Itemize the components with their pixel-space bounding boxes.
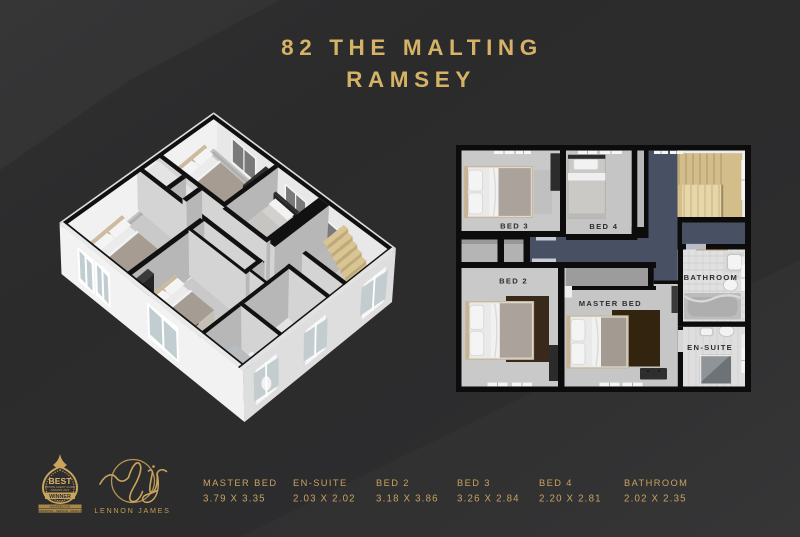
svg-text:3.79 X 3.35: 3.79 X 3.35 bbox=[203, 494, 266, 505]
svg-text:EN-SUITE: EN-SUITE bbox=[293, 478, 348, 488]
svg-text:MARKETING - SERVICE - RESULTS: MARKETING - SERVICE - RESULTS bbox=[37, 509, 84, 513]
svg-text:BED 4: BED 4 bbox=[589, 222, 618, 231]
svg-text:LENNON JAMES: LENNON JAMES bbox=[94, 506, 170, 515]
svg-text:BED 3: BED 3 bbox=[500, 221, 529, 230]
svg-text:BED 2: BED 2 bbox=[499, 276, 528, 285]
svg-text:2.03 X 2.02: 2.03 X 2.02 bbox=[293, 494, 356, 505]
svg-text:BED 2: BED 2 bbox=[376, 478, 410, 488]
svg-text:3.26 X 2.84: 3.26 X 2.84 bbox=[457, 494, 520, 505]
svg-text:2.02 X 2.35: 2.02 X 2.35 bbox=[624, 494, 687, 505]
svg-text:BED 4: BED 4 bbox=[539, 478, 573, 488]
svg-text:AWARDS 2022: AWARDS 2022 bbox=[51, 488, 70, 492]
svg-text:RAMSEY: RAMSEY bbox=[346, 67, 476, 92]
svg-text:BEST: BEST bbox=[49, 476, 73, 486]
svg-text:MASTER BED: MASTER BED bbox=[579, 299, 642, 308]
svg-text:BED 3: BED 3 bbox=[457, 478, 491, 488]
svg-text:2.20 X 2.81: 2.20 X 2.81 bbox=[539, 494, 602, 505]
svg-text:82 THE MALTING: 82 THE MALTING bbox=[281, 35, 543, 60]
svg-text:3.18 X 3.86: 3.18 X 3.86 bbox=[376, 494, 439, 505]
svg-text:BATHROOM: BATHROOM bbox=[684, 273, 739, 282]
svg-text:EN-SUITE: EN-SUITE bbox=[687, 343, 733, 352]
svg-text:BATHROOM: BATHROOM bbox=[624, 478, 688, 488]
svg-text:MASTER BED: MASTER BED bbox=[203, 478, 277, 488]
svg-text:SALES: SALES bbox=[55, 500, 65, 504]
